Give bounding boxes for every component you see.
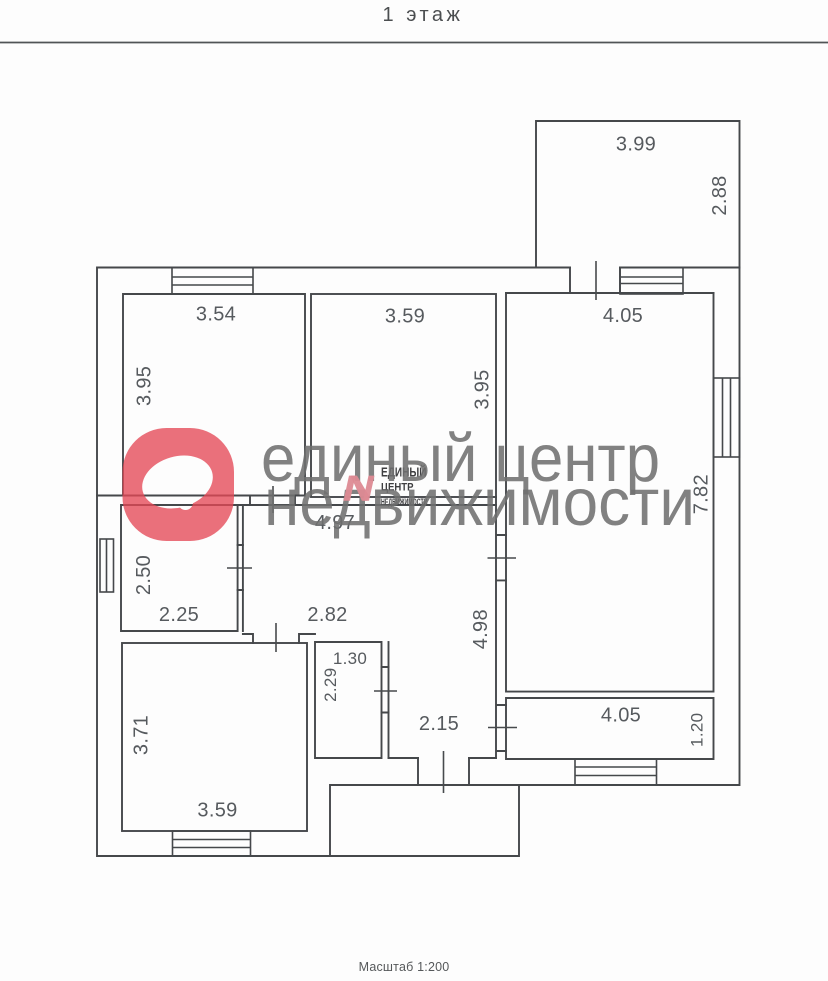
svg-text:2.82: 2.82 <box>307 604 347 626</box>
svg-text:3.59: 3.59 <box>385 306 425 328</box>
svg-text:недвижимости: недвижимости <box>264 465 695 540</box>
svg-text:4.05: 4.05 <box>601 705 641 727</box>
svg-text:3.95: 3.95 <box>133 366 155 406</box>
svg-text:3.71: 3.71 <box>130 715 152 755</box>
svg-text:2.29: 2.29 <box>321 668 340 702</box>
svg-text:2.88: 2.88 <box>709 175 731 215</box>
svg-text:1 этаж: 1 этаж <box>383 4 464 26</box>
svg-text:1.30: 1.30 <box>333 649 367 668</box>
svg-text:Масштаб 1:200: Масштаб 1:200 <box>359 960 450 974</box>
svg-text:2.50: 2.50 <box>133 555 155 595</box>
svg-text:2.25: 2.25 <box>159 604 199 626</box>
svg-text:4.05: 4.05 <box>603 305 643 327</box>
svg-text:3.99: 3.99 <box>616 134 656 156</box>
svg-text:2.15: 2.15 <box>419 713 459 735</box>
svg-text:4.98: 4.98 <box>470 609 492 649</box>
svg-text:3.95: 3.95 <box>471 369 493 409</box>
svg-text:1.20: 1.20 <box>688 713 707 747</box>
svg-text:3.59: 3.59 <box>197 800 237 822</box>
svg-text:3.54: 3.54 <box>196 304 236 326</box>
